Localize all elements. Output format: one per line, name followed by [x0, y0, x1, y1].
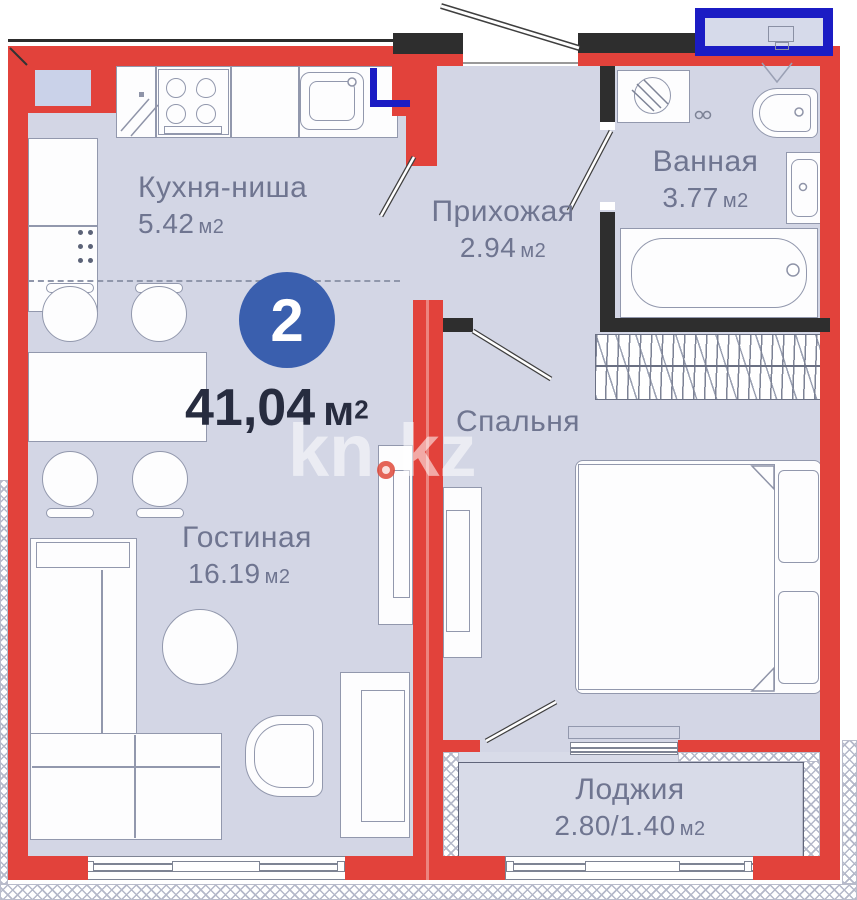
living-label: Гостиная 16.19м2 [182, 520, 362, 591]
loggia-name: Лоджия [470, 772, 790, 809]
living-area-value: 16.19 [188, 558, 261, 589]
blanket-folds [752, 466, 774, 691]
hallway-area-unit: м2 [520, 240, 546, 262]
loggia-area-value: 2.80/1.40 [554, 810, 675, 841]
living-area: 16.19м2 [182, 557, 362, 591]
room-count-badge: 2 [239, 272, 335, 368]
living-name: Гостиная [182, 520, 362, 557]
corner-bevel [10, 48, 27, 65]
floor-plan: Кухня-ниша 5.42м2 Прихожая 2.94м2 Ванная… [0, 0, 857, 900]
watermark-left: kn [288, 408, 374, 493]
corner-shelf-icon [762, 63, 792, 82]
bedroom-door-leaf [473, 331, 551, 379]
bedroom-label: Спальня [456, 404, 626, 441]
hallway-name: Прихожая [408, 194, 598, 231]
sink-tap-icon [348, 78, 356, 86]
bedroom-name: Спальня [456, 404, 626, 441]
hallway-label: Прихожая 2.94м2 [408, 194, 598, 265]
balcony-door-leaf [486, 702, 556, 741]
kitchen-area-unit: м2 [199, 216, 225, 238]
room-count: 2 [270, 286, 303, 355]
washer-drum-hatch [632, 80, 668, 111]
corner-cabinet-lines [121, 92, 158, 136]
kitchen-area: 5.42м2 [138, 207, 368, 241]
bathroom-label: Ванная 3.77м2 [618, 144, 793, 215]
toilet-flush-icon [795, 108, 803, 116]
bathroom-name: Ванная [618, 144, 793, 181]
hallway-area: 2.94м2 [408, 231, 598, 265]
bathroom-area-value: 3.77 [662, 182, 719, 213]
bathroom-area-unit: м2 [723, 190, 749, 212]
loggia-area-unit: м2 [680, 818, 706, 840]
sink-drain-icon [800, 184, 807, 191]
watermark-right: kz [398, 408, 476, 493]
bathroom-area: 3.77м2 [618, 181, 793, 215]
loggia-label: Лоджия 2.80/1.40м2 [470, 772, 790, 843]
loggia-area: 2.80/1.40м2 [470, 809, 790, 843]
entrance-door-leaf [441, 6, 579, 48]
hallway-area-value: 2.94 [460, 232, 517, 263]
washer-infinity-icon [696, 112, 711, 119]
watermark-dot-icon [377, 461, 395, 479]
kitchen-area-value: 5.42 [138, 208, 195, 239]
bathtub-drain-icon [787, 264, 799, 276]
kitchen-label: Кухня-ниша 5.42м2 [138, 170, 368, 241]
kitchen-name: Кухня-ниша [138, 170, 368, 207]
watermark: kn kz [288, 408, 477, 493]
living-area-unit: м2 [265, 566, 291, 588]
